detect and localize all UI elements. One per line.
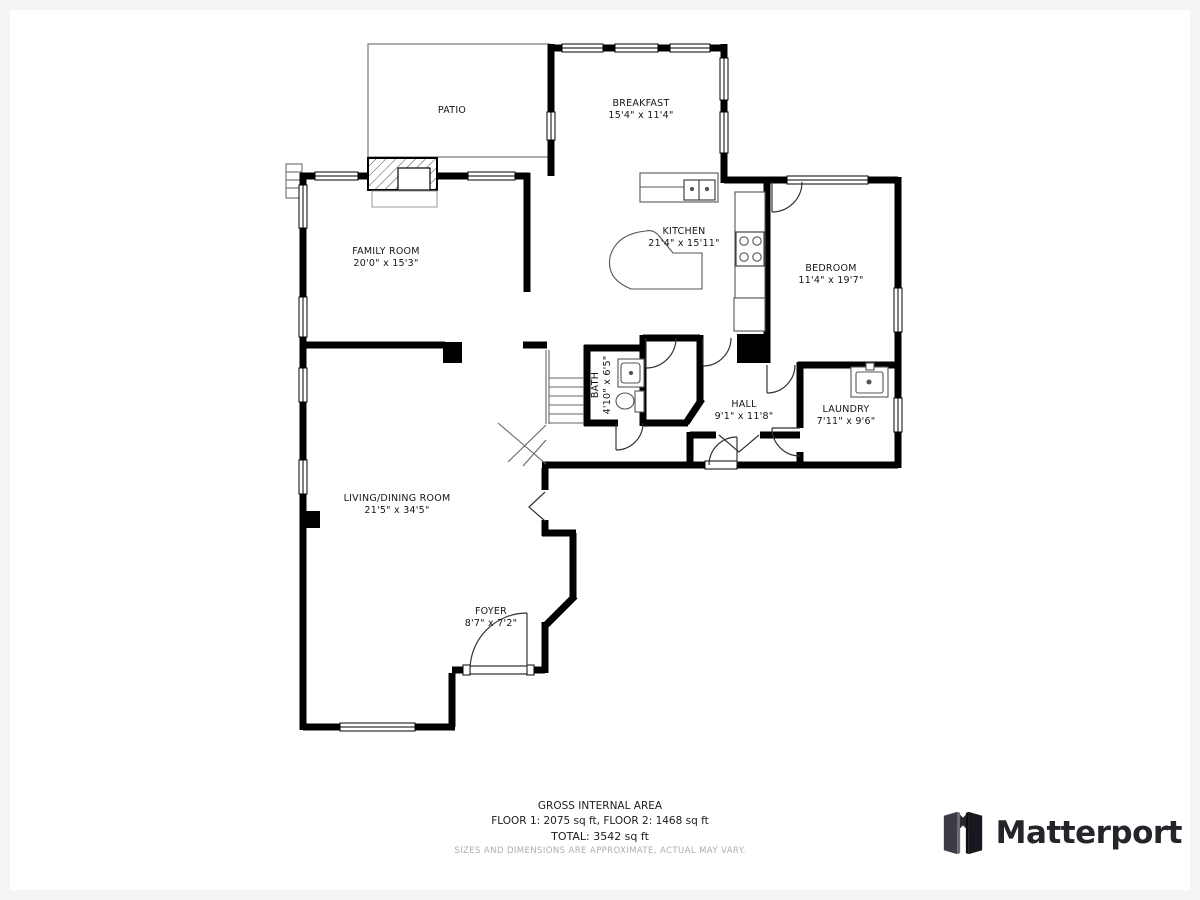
room-label-laundry: LAUNDRY 7'11" x 9'6" [817, 404, 876, 428]
room-dims: 21'5" x 34'5" [344, 505, 451, 517]
room-label-living-dining: LIVING/DINING ROOM 21'5" x 34'5" [344, 493, 451, 517]
room-label-breakfast: BREAKFAST 15'4" x 11'4" [608, 98, 673, 122]
matterport-wordmark: Matterport [996, 815, 1182, 851]
room-name: BATH [590, 356, 602, 415]
room-dims: 4'10" x 6'5" [602, 356, 614, 415]
room-label-bath: BATH 4'10" x 6'5" [590, 356, 614, 415]
room-dims: 21'4" x 15'11" [648, 238, 719, 250]
room-label-patio: PATIO [438, 105, 466, 117]
room-label-bedroom: BEDROOM 11'4" x 19'7" [798, 263, 863, 287]
room-dims: 11'4" x 19'7" [798, 275, 863, 287]
room-name: LAUNDRY [817, 404, 876, 416]
room-dims: 7'11" x 9'6" [817, 416, 876, 428]
room-dims: 9'1" x 11'8" [715, 411, 774, 423]
matterport-logo-icon [940, 810, 986, 856]
room-name: KITCHEN [648, 226, 719, 238]
room-name: FAMILY ROOM [352, 246, 419, 258]
room-label-kitchen: KITCHEN 21'4" x 15'11" [648, 226, 719, 250]
room-name: HALL [715, 399, 774, 411]
room-dims: 20'0" x 15'3" [352, 258, 419, 270]
room-dims: 15'4" x 11'4" [608, 110, 673, 122]
room-dims: 8'7" x 7'2" [465, 618, 518, 630]
room-label-hall: HALL 9'1" x 11'8" [715, 399, 774, 423]
matterport-logo: Matterport [940, 810, 1182, 856]
room-name: BEDROOM [798, 263, 863, 275]
room-labels: PATIO BREAKFAST 15'4" x 11'4" FAMILY ROO… [0, 0, 1200, 900]
room-name: PATIO [438, 105, 466, 117]
room-label-foyer: FOYER 8'7" x 7'2" [465, 606, 518, 630]
room-name: FOYER [465, 606, 518, 618]
room-name: LIVING/DINING ROOM [344, 493, 451, 505]
room-label-family-room: FAMILY ROOM 20'0" x 15'3" [352, 246, 419, 270]
floorplan-canvas: PATIO BREAKFAST 15'4" x 11'4" FAMILY ROO… [0, 0, 1200, 900]
room-name: BREAKFAST [608, 98, 673, 110]
